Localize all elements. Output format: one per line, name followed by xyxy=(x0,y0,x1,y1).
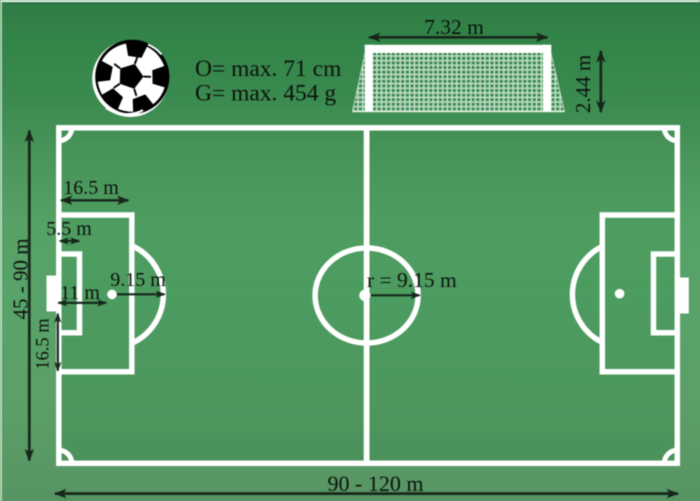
svg-text:5.5 m: 5.5 m xyxy=(46,218,92,240)
svg-text:7.32 m: 7.32 m xyxy=(424,15,484,39)
svg-text:16.5 m: 16.5 m xyxy=(63,177,119,199)
svg-text:r = 9.15 m: r = 9.15 m xyxy=(367,268,457,292)
svg-text:16.5 m: 16.5 m xyxy=(34,318,54,370)
svg-text:G= max. 454 g: G= max. 454 g xyxy=(195,81,336,107)
svg-text:9.15 m: 9.15 m xyxy=(110,269,166,291)
svg-text:11 m: 11 m xyxy=(60,282,100,304)
svg-text:2.44 m: 2.44 m xyxy=(571,55,595,113)
svg-text:O= max. 71 cm: O= max. 71 cm xyxy=(195,56,341,82)
